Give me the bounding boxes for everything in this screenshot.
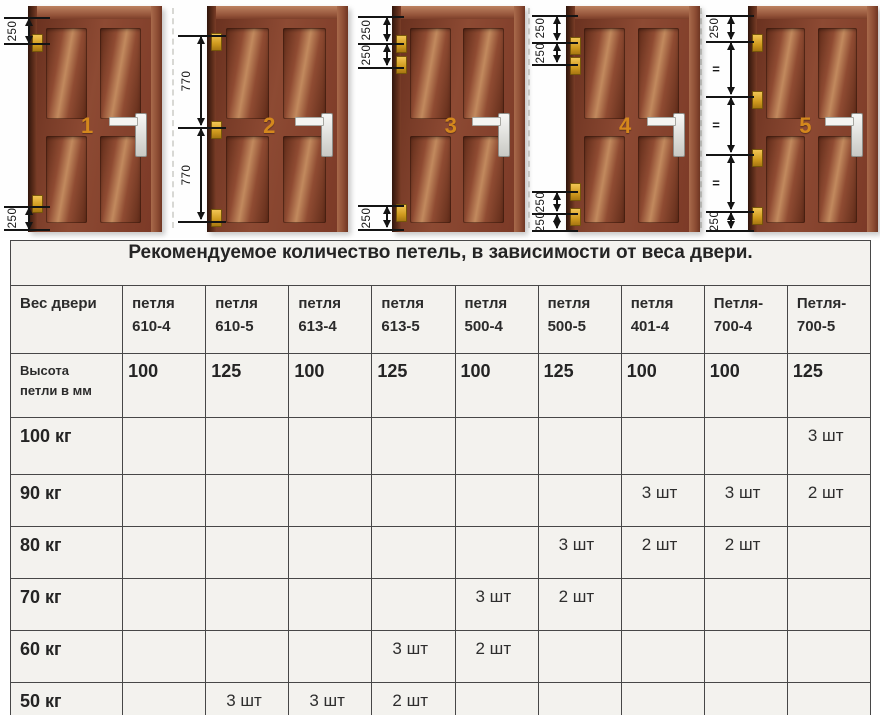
height-value: 125 [372, 354, 455, 418]
dim-tick [532, 64, 578, 66]
door-figure-3: 3 [392, 6, 525, 232]
door-frame [392, 6, 525, 19]
dim-arrow-icon [730, 43, 732, 94]
qty-cell: 2 шт [787, 475, 870, 527]
dim-label: 250 [535, 192, 547, 213]
door-panel [766, 28, 806, 120]
door-handle-icon [295, 117, 324, 126]
hinge-icon [752, 34, 763, 52]
qty-cell [123, 527, 206, 579]
door-panel [46, 136, 87, 223]
col-header: петля500-4 [455, 286, 538, 354]
qty-cell [455, 527, 538, 579]
table-row: 100 кг 3 шт [11, 418, 871, 475]
door-leaf: 4 [575, 19, 689, 232]
door-frame [566, 6, 700, 19]
door-leaf: 1 [37, 19, 151, 232]
qty-cell: 2 шт [621, 527, 704, 579]
section-divider [700, 8, 702, 228]
hinge-type: Петля- [797, 293, 866, 316]
door-number-label: 3 [445, 113, 457, 139]
hinge-type: петля [132, 293, 201, 316]
hinge-type: петля [631, 293, 700, 316]
hinge-type: петля [381, 293, 450, 316]
hinge-icon [32, 195, 43, 213]
hinge-icon [211, 121, 222, 139]
qty-cell [704, 631, 787, 683]
qty-cell [621, 631, 704, 683]
weight-label: 70 кг [11, 579, 123, 631]
table-row: 90 кг 3 шт 3 шт 2 шт [11, 475, 871, 527]
qty-cell [621, 418, 704, 475]
door-panel [410, 28, 451, 120]
qty-cell [455, 418, 538, 475]
dim-label: 250 [361, 20, 373, 41]
door-handle-icon [825, 117, 854, 126]
qty-cell [372, 475, 455, 527]
door-leaf: 5 [757, 19, 867, 232]
col-header: Петля-700-5 [787, 286, 870, 354]
height-value: 100 [621, 354, 704, 418]
door-panel [638, 28, 679, 120]
dim-label: 250 [709, 211, 721, 232]
qty-cell [289, 475, 372, 527]
qty-cell: 2 шт [455, 631, 538, 683]
qty-cell [206, 579, 289, 631]
dim-arrow-icon [28, 208, 30, 229]
door-panel [46, 28, 87, 120]
door-panel [283, 136, 327, 223]
qty-cell [206, 475, 289, 527]
door-frame [337, 6, 348, 232]
dim-tick [358, 16, 404, 18]
door-panel [100, 28, 141, 120]
table-header-row: Вес двери петля610-4 петля610-5 петля613… [11, 286, 871, 354]
col-header-weight: Вес двери [11, 286, 123, 354]
dim-tick [358, 229, 404, 231]
col-header: петля610-4 [123, 286, 206, 354]
qty-cell [123, 579, 206, 631]
dim-arrow-icon [730, 213, 732, 228]
qty-cell [206, 631, 289, 683]
qty-cell [538, 683, 621, 715]
door-panel [283, 28, 327, 120]
hinge-icon [211, 209, 222, 227]
qty-cell [372, 418, 455, 475]
hinge-model: 610-4 [132, 316, 201, 339]
height-value: 100 [123, 354, 206, 418]
hinge-model: 500-4 [465, 316, 534, 339]
qty-cell [787, 527, 870, 579]
door-panel [226, 28, 270, 120]
hinge-model: 613-5 [381, 316, 450, 339]
door-panel [463, 28, 504, 120]
hinge-icon [752, 149, 763, 167]
door-figure-1: 1 [28, 6, 162, 232]
infographic-door-hinges: 1 250 250 2 [0, 0, 880, 715]
qty-cell [455, 475, 538, 527]
dim-label: 250 [535, 212, 547, 233]
hinge-icon [570, 57, 581, 75]
hinge-model: 700-5 [797, 316, 866, 339]
col-header: петля500-5 [538, 286, 621, 354]
table-row: 50 кг 3 шт 3 шт 2 шт [11, 683, 871, 715]
qty-cell: 3 шт [621, 475, 704, 527]
table-row: 70 кг 3 шт 2 шт [11, 579, 871, 631]
weight-label: 50 кг [11, 683, 123, 715]
qty-cell [123, 475, 206, 527]
door-figure-4: 4 [566, 6, 700, 232]
qty-cell [621, 579, 704, 631]
dim-arrow-icon [28, 19, 30, 43]
qty-cell [123, 418, 206, 475]
hinge-type: петля [548, 293, 617, 316]
hinge-icon [752, 91, 763, 109]
height-value: 100 [289, 354, 372, 418]
qty-cell: 3 шт [538, 527, 621, 579]
qty-cell: 3 шт [289, 683, 372, 715]
dim-label: 250 [7, 21, 19, 42]
qty-cell: 2 шт [372, 683, 455, 715]
dim-arrow-icon [730, 17, 732, 39]
qty-cell: 2 шт [538, 579, 621, 631]
hinge-icon [570, 37, 581, 55]
door-panel [766, 136, 806, 223]
door-panel [410, 136, 451, 223]
qty-cell [289, 418, 372, 475]
table-row: 80 кг 3 шт 2 шт 2 шт [11, 527, 871, 579]
dim-tick [358, 67, 404, 69]
door-figure-5: 5 [748, 6, 878, 232]
hinge-icon [396, 56, 407, 74]
qty-cell [455, 683, 538, 715]
qty-cell [289, 579, 372, 631]
hinge-model: 610-5 [215, 316, 284, 339]
section-divider [172, 8, 174, 228]
door-number-label: 4 [619, 113, 631, 139]
height-value: 100 [455, 354, 538, 418]
hinge-model: 700-4 [714, 316, 783, 339]
weight-label: 60 кг [11, 631, 123, 683]
door-handle-icon [109, 117, 138, 126]
qty-cell: 3 шт [206, 683, 289, 715]
qty-cell [206, 418, 289, 475]
door-frame [207, 6, 348, 19]
door-frame [748, 6, 878, 19]
dim-arrow-icon [730, 156, 732, 209]
hinge-model: 401-4 [631, 316, 700, 339]
dim-equal-label: = [712, 118, 720, 133]
qty-cell [787, 631, 870, 683]
weight-label: 90 кг [11, 475, 123, 527]
hinge-icon [570, 208, 581, 226]
qty-cell [538, 631, 621, 683]
row-label-line: Высота [20, 361, 118, 381]
col-header: петля401-4 [621, 286, 704, 354]
dim-label: 250 [361, 208, 373, 229]
qty-cell [123, 683, 206, 715]
qty-cell: 3 шт [455, 579, 538, 631]
dim-label: 250 [361, 45, 373, 66]
dim-arrow-icon [556, 215, 558, 228]
dim-label: 250 [709, 18, 721, 39]
qty-cell [704, 418, 787, 475]
dim-arrow-icon [386, 45, 388, 65]
row-label-line: петли в мм [20, 381, 118, 401]
hinge-icon [752, 207, 763, 225]
dim-arrow-icon [386, 207, 388, 227]
qty-cell [704, 579, 787, 631]
qty-cell [289, 631, 372, 683]
dim-tick [178, 221, 226, 223]
dim-arrow-icon [200, 37, 202, 125]
dim-label: 250 [535, 43, 547, 64]
qty-cell [372, 527, 455, 579]
dim-arrow-icon [200, 129, 202, 219]
door-frame [689, 6, 700, 232]
qty-cell: 2 шт [704, 527, 787, 579]
table-row: 60 кг 3 шт 2 шт [11, 631, 871, 683]
hinge-height-row: Высотапетли в мм 100 125 100 125 100 125… [11, 354, 871, 418]
dim-arrow-icon [386, 18, 388, 41]
table-title: Рекомендуемое количество петель, в завис… [11, 241, 871, 286]
door-number-label: 1 [81, 113, 93, 139]
hinge-recommendation-table: Рекомендуемое количество петель, в завис… [10, 240, 871, 711]
dim-arrow-icon [730, 98, 732, 152]
hinge-type: петля [298, 293, 367, 316]
dim-label: 250 [7, 208, 19, 229]
qty-cell: 3 шт [787, 418, 870, 475]
qty-cell [289, 527, 372, 579]
qty-cell [704, 683, 787, 715]
door-figure-2: 2 [207, 6, 348, 232]
qty-cell [538, 418, 621, 475]
height-value: 125 [206, 354, 289, 418]
qty-cell [123, 631, 206, 683]
door-frame [867, 6, 878, 232]
dim-arrow-icon [556, 17, 558, 40]
col-header: петля613-5 [372, 286, 455, 354]
qty-cell [372, 579, 455, 631]
dim-equal-label: = [712, 176, 720, 191]
door-leaf: 3 [401, 19, 514, 232]
dim-label: 770 [181, 71, 193, 92]
dim-label: 250 [535, 18, 547, 39]
hinge-type: Петля- [714, 293, 783, 316]
dim-arrow-icon [556, 193, 558, 211]
dim-equal-label: = [712, 62, 720, 77]
qty-cell [206, 527, 289, 579]
door-panel [226, 136, 270, 223]
col-header: Петля-700-4 [704, 286, 787, 354]
height-value: 125 [787, 354, 870, 418]
door-panel [584, 136, 625, 223]
qty-cell [787, 579, 870, 631]
row-label: Высотапетли в мм [11, 354, 123, 418]
dim-arrow-icon [556, 44, 558, 62]
hinge-model: 500-5 [548, 316, 617, 339]
door-leaf: 2 [216, 19, 337, 232]
dim-label: 770 [181, 165, 193, 186]
door-number-label: 2 [263, 113, 275, 139]
door-frame [514, 6, 525, 232]
height-value: 100 [704, 354, 787, 418]
col-header: петля613-4 [289, 286, 372, 354]
door-number-label: 5 [799, 113, 811, 139]
hinge-type: петля [465, 293, 534, 316]
doors-diagram-section: 1 250 250 2 [0, 0, 880, 238]
hinge-model: 613-4 [298, 316, 367, 339]
qty-cell [538, 475, 621, 527]
door-frame [151, 6, 162, 232]
hinge-type: петля [215, 293, 284, 316]
door-panel [584, 28, 625, 120]
section-divider [528, 8, 530, 228]
qty-cell [621, 683, 704, 715]
door-handle-icon [472, 117, 501, 126]
door-panel [818, 28, 858, 120]
qty-cell: 3 шт [372, 631, 455, 683]
qty-cell [787, 683, 870, 715]
door-handle-icon [647, 117, 676, 126]
height-value: 125 [538, 354, 621, 418]
weight-label: 80 кг [11, 527, 123, 579]
col-header: петля610-5 [206, 286, 289, 354]
weight-label: 100 кг [11, 418, 123, 475]
qty-cell: 3 шт [704, 475, 787, 527]
